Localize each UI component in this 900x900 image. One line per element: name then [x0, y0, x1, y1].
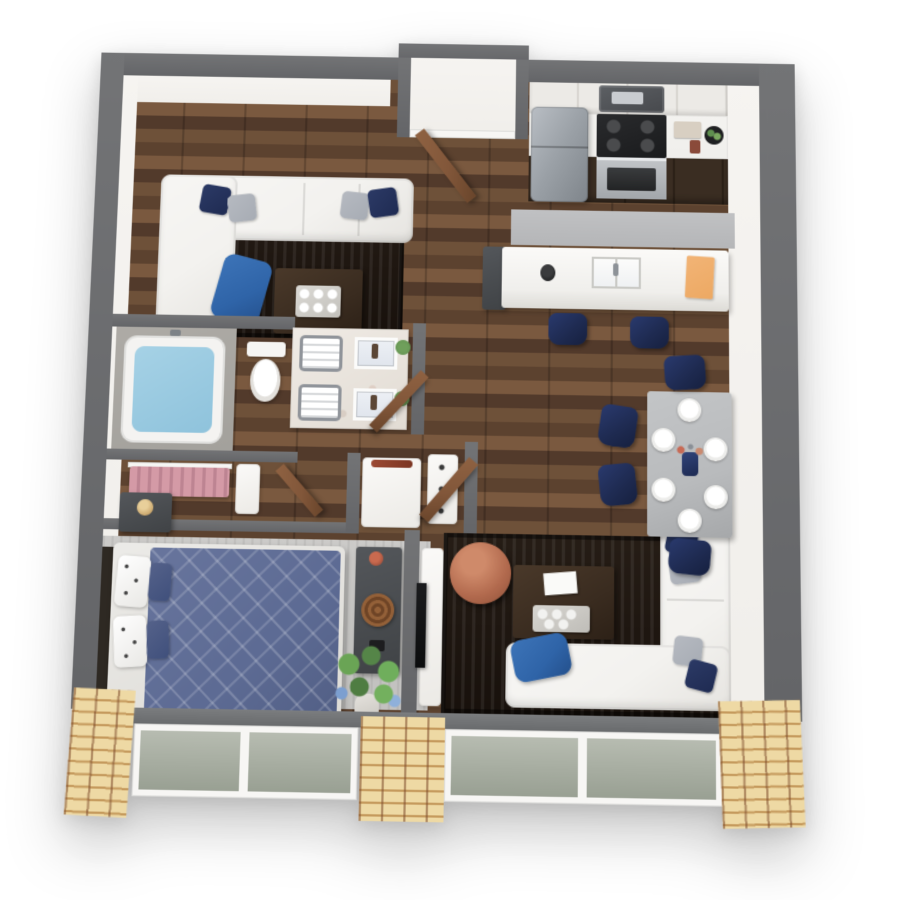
- bar-stool: [630, 316, 669, 348]
- bathtub-water: [131, 346, 214, 433]
- counter-cutting-board: [674, 121, 702, 138]
- gray-pillow: [339, 191, 370, 221]
- oven-window: [607, 167, 656, 191]
- white-polka-pillow: [113, 555, 151, 609]
- bed-quilt: [144, 547, 341, 720]
- coffee-maker: [690, 140, 701, 154]
- wall-laundry-left: [346, 453, 361, 534]
- living2-window-glass: [587, 738, 716, 800]
- navy-pillow: [367, 187, 399, 219]
- tray-with-cups: [295, 285, 341, 317]
- wall-face-top-living: [137, 75, 391, 106]
- bedroom-window-glass: [138, 730, 240, 791]
- floorplan-stage: [0, 0, 900, 900]
- navy-sham-pillow: [147, 620, 169, 659]
- place-setting-plate: [652, 478, 676, 502]
- dining-chair: [597, 403, 639, 449]
- entry-side-wall-right: [515, 60, 529, 140]
- bedroom-window-glass: [248, 732, 352, 793]
- toilet-tank: [247, 342, 286, 358]
- place-setting-plate: [652, 428, 676, 452]
- tv-screen: [415, 583, 427, 668]
- white-book: [543, 571, 578, 595]
- gray-pillow: [227, 193, 257, 223]
- place-setting-plate: [678, 508, 702, 532]
- washer-top-seam: [371, 460, 412, 468]
- dining-chair: [668, 537, 712, 576]
- wall-hall-right: [464, 442, 478, 536]
- tray-with-cups: [533, 605, 590, 633]
- stacked-washer-dryer: [361, 457, 421, 528]
- towel-stack: [301, 387, 339, 418]
- brick-pier-center: [358, 716, 445, 822]
- tub-faucet: [170, 330, 181, 337]
- dining-chair: [597, 462, 638, 506]
- place-setting-plate: [704, 485, 728, 509]
- cooktop: [597, 114, 667, 158]
- centerpiece-flowers: [673, 441, 706, 459]
- wall-right: [759, 64, 802, 722]
- white-polka-pillow: [113, 615, 147, 668]
- closet-shelf-unit: [235, 464, 261, 514]
- living2-window-glass: [451, 736, 579, 797]
- navy-sham-pillow: [147, 562, 172, 601]
- entry-alcove-floor: [410, 58, 517, 133]
- bar-stool: [548, 313, 587, 345]
- apartment-floorplan: [65, 53, 803, 837]
- dining-chair: [663, 354, 706, 390]
- refrigerator: [530, 107, 588, 203]
- island-black-vase: [540, 264, 555, 281]
- kitchen-runner-rug: [511, 209, 735, 248]
- orange-cutting-board: [685, 256, 715, 300]
- place-setting-plate: [704, 437, 728, 461]
- brick-pier-left: [64, 687, 136, 817]
- brick-pier-right: [718, 700, 806, 829]
- wall-face-right: [727, 85, 764, 721]
- sink-faucet: [370, 395, 377, 410]
- towel-stack: [302, 338, 339, 368]
- island-faucet: [613, 263, 618, 276]
- floorplan-perspective-wrapper: [65, 53, 803, 837]
- fruit-bowl: [704, 126, 723, 145]
- corner-plant-foliage: [330, 644, 404, 710]
- place-setting-plate: [677, 398, 701, 422]
- sink-faucet: [372, 344, 379, 359]
- microwave-window: [612, 92, 644, 105]
